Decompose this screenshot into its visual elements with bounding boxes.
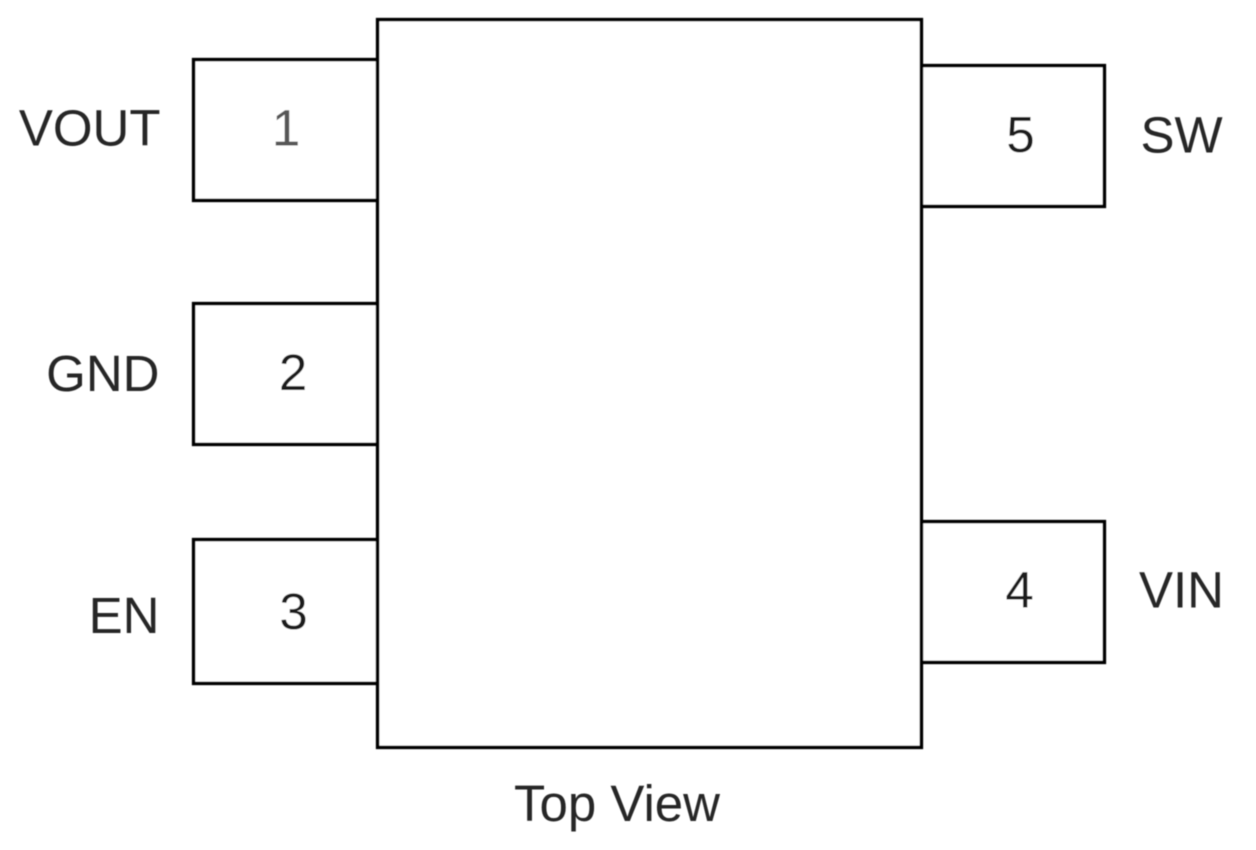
svg-text:EN: EN — [89, 587, 160, 644]
svg-text:VOUT: VOUT — [19, 100, 161, 157]
svg-text:VIN: VIN — [1139, 562, 1224, 619]
svg-text:2: 2 — [279, 344, 307, 401]
svg-text:1: 1 — [272, 100, 300, 157]
svg-text:3: 3 — [279, 583, 307, 640]
svg-text:Top View: Top View — [514, 775, 720, 832]
svg-text:GND: GND — [46, 345, 159, 402]
svg-text:4: 4 — [1005, 562, 1033, 619]
svg-text:SW: SW — [1141, 106, 1223, 163]
svg-text:5: 5 — [1006, 106, 1034, 163]
